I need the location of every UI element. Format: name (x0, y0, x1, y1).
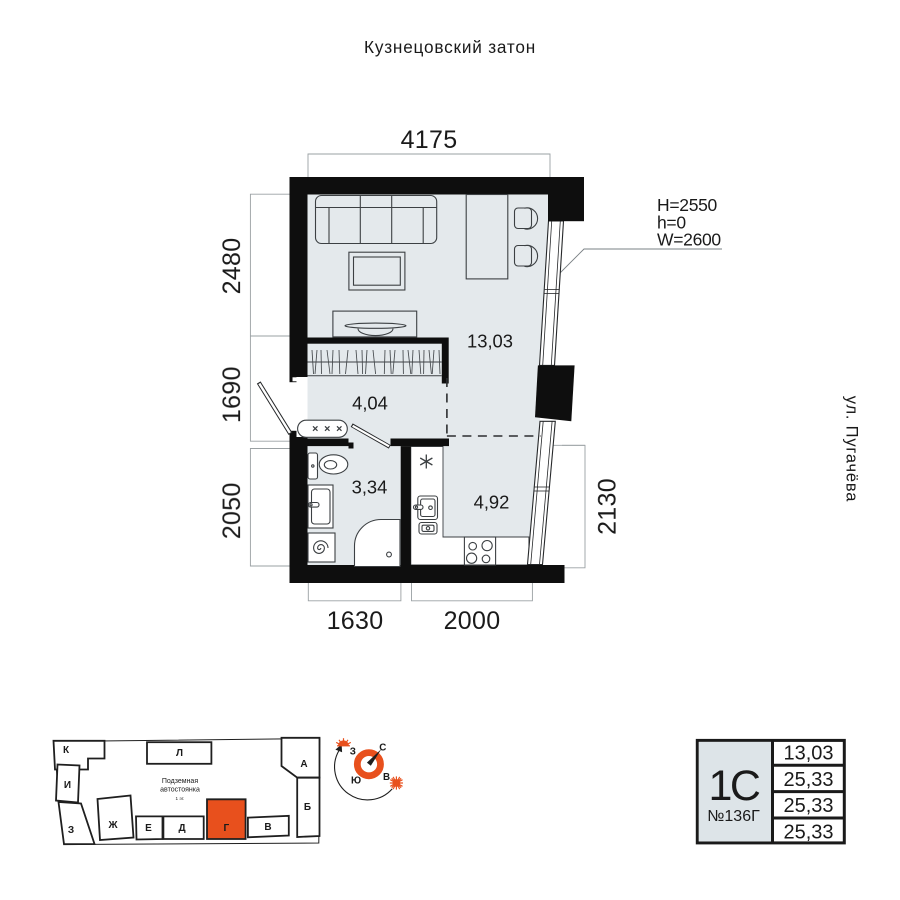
svg-text:1С: 1С (709, 762, 760, 810)
svg-text:В: В (264, 822, 271, 833)
svg-text:Кузнецовский затон: Кузнецовский затон (364, 37, 536, 57)
svg-text:1630: 1630 (327, 607, 384, 635)
svg-text:В: В (383, 772, 390, 783)
svg-text:С: С (379, 743, 386, 754)
svg-text:ул. Пугачёва: ул. Пугачёва (843, 396, 861, 502)
svg-text:25,33: 25,33 (783, 769, 833, 791)
svg-text:2130: 2130 (594, 478, 622, 535)
svg-text:Ж: Ж (107, 820, 118, 831)
svg-text:Л: Л (176, 748, 183, 759)
svg-text:К: К (63, 745, 70, 756)
svg-text:2000: 2000 (444, 607, 501, 635)
svg-text:автостоянка: автостоянка (160, 787, 200, 794)
svg-text:2480: 2480 (218, 238, 246, 295)
svg-text:4,04: 4,04 (352, 393, 388, 414)
svg-text:Д: Д (178, 823, 185, 834)
svg-text:И: И (64, 780, 71, 791)
svg-text:W=2600: W=2600 (657, 230, 721, 250)
svg-text:З: З (350, 747, 356, 758)
svg-text:№136Г: №136Г (707, 808, 760, 825)
svg-text:Б: Б (304, 802, 311, 813)
svg-text:А: А (300, 759, 307, 770)
svg-text:1 эт.: 1 эт. (176, 796, 185, 801)
svg-text:1690: 1690 (218, 366, 246, 423)
svg-text:4175: 4175 (401, 126, 458, 154)
svg-text:13,03: 13,03 (467, 331, 513, 352)
svg-text:Е: Е (145, 823, 152, 834)
svg-text:3,34: 3,34 (352, 477, 388, 498)
svg-text:13,03: 13,03 (783, 743, 833, 765)
svg-text:25,33: 25,33 (783, 795, 833, 817)
svg-text:2050: 2050 (218, 482, 246, 539)
svg-text:Подземная: Подземная (162, 778, 198, 785)
svg-text:Ю: Ю (351, 776, 361, 787)
svg-text:25,33: 25,33 (783, 822, 833, 844)
svg-text:З: З (68, 825, 74, 836)
svg-text:Г: Г (223, 823, 229, 834)
svg-text:4,92: 4,92 (474, 492, 510, 513)
